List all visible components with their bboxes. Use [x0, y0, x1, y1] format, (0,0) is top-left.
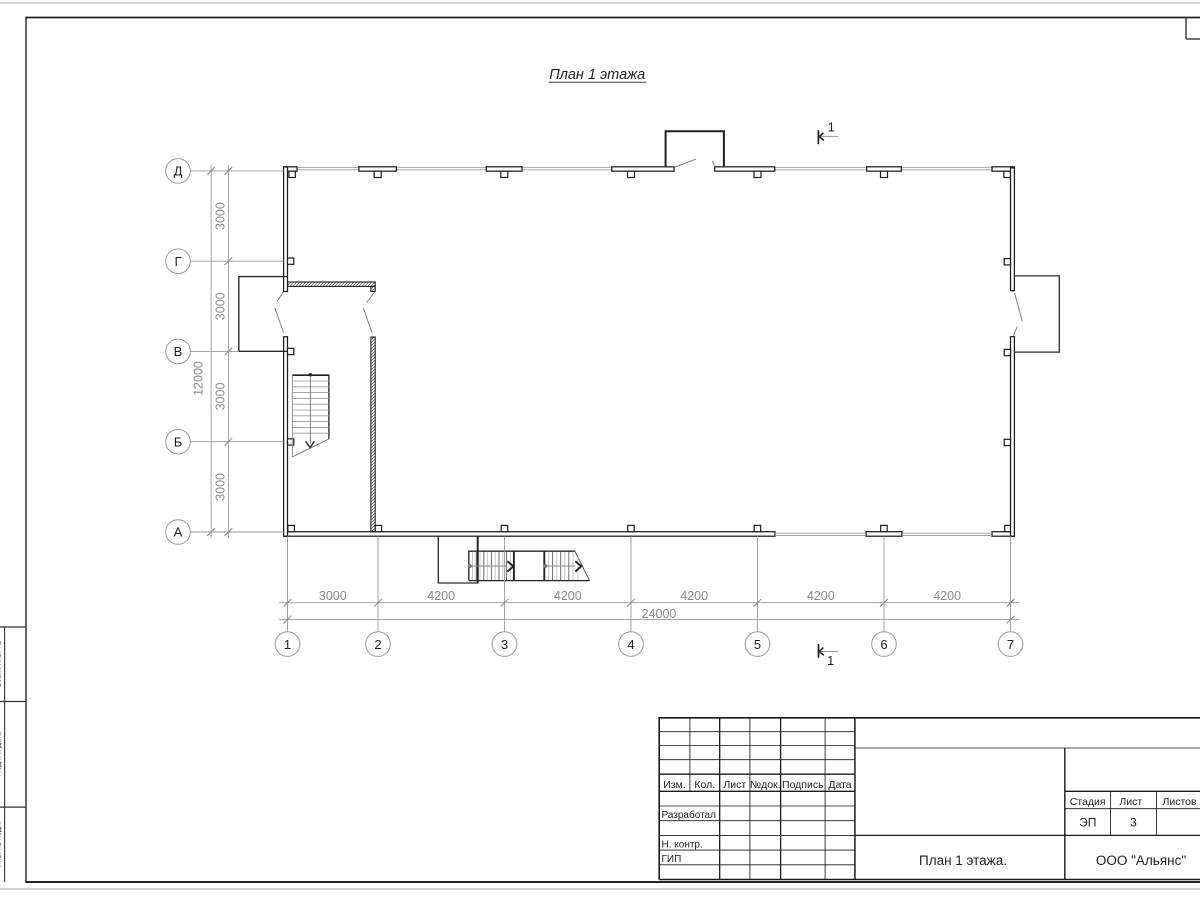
- svg-text:Инв. № подл.: Инв. № подл.: [0, 821, 2, 868]
- svg-text:3000: 3000: [214, 292, 228, 320]
- svg-text:Дата: Дата: [828, 779, 851, 791]
- svg-text:3000: 3000: [319, 589, 347, 603]
- svg-text:24000: 24000: [642, 607, 677, 621]
- svg-text:5: 5: [754, 637, 761, 652]
- svg-text:12000: 12000: [192, 361, 206, 396]
- svg-text:Кол.: Кол.: [694, 779, 715, 791]
- svg-text:4200: 4200: [933, 589, 961, 603]
- svg-text:Взам. инв. №: Взам. инв. №: [0, 641, 2, 687]
- svg-text:4200: 4200: [807, 589, 835, 603]
- svg-text:7: 7: [1007, 637, 1014, 652]
- svg-text:ЭП: ЭП: [1079, 816, 1096, 830]
- svg-text:1: 1: [828, 120, 835, 135]
- svg-text:Н. контр.: Н. контр.: [662, 839, 703, 850]
- svg-text:2: 2: [374, 637, 381, 652]
- svg-text:3: 3: [501, 637, 508, 652]
- svg-text:Листов: Листов: [1162, 796, 1197, 808]
- svg-text:4200: 4200: [427, 589, 455, 603]
- svg-text:3000: 3000: [214, 383, 228, 411]
- svg-text:4200: 4200: [554, 589, 582, 603]
- svg-text:Подпись: Подпись: [782, 779, 824, 791]
- svg-text:В: В: [174, 344, 183, 359]
- svg-text:Лист: Лист: [723, 779, 746, 791]
- svg-text:Б: Б: [174, 434, 183, 449]
- svg-text:Стадия: Стадия: [1070, 796, 1106, 808]
- svg-text:Разработал: Разработал: [662, 809, 717, 821]
- svg-text:Подп. и дата: Подп. и дата: [0, 731, 2, 776]
- svg-text:6: 6: [880, 637, 887, 652]
- svg-text:План 1 этажа: План 1 этажа: [549, 67, 645, 83]
- svg-text:Д: Д: [174, 164, 183, 179]
- svg-text:3000: 3000: [214, 202, 228, 230]
- svg-text:Лист: Лист: [1119, 796, 1142, 808]
- svg-text:1: 1: [284, 637, 291, 652]
- svg-text:3000: 3000: [214, 473, 228, 501]
- svg-text:А: А: [174, 525, 183, 540]
- svg-text:ООО "Альянс": ООО "Альянс": [1096, 853, 1186, 868]
- svg-text:№док.: №док.: [750, 779, 781, 791]
- svg-text:1: 1: [827, 653, 834, 668]
- svg-text:4: 4: [627, 637, 634, 652]
- svg-text:План 1 этажа.: План 1 этажа.: [919, 853, 1007, 868]
- svg-text:ГИП: ГИП: [662, 854, 682, 865]
- svg-text:Г: Г: [174, 254, 181, 269]
- svg-text:4200: 4200: [680, 589, 708, 603]
- svg-text:Изм.: Изм.: [663, 779, 686, 791]
- svg-text:3: 3: [1130, 816, 1137, 830]
